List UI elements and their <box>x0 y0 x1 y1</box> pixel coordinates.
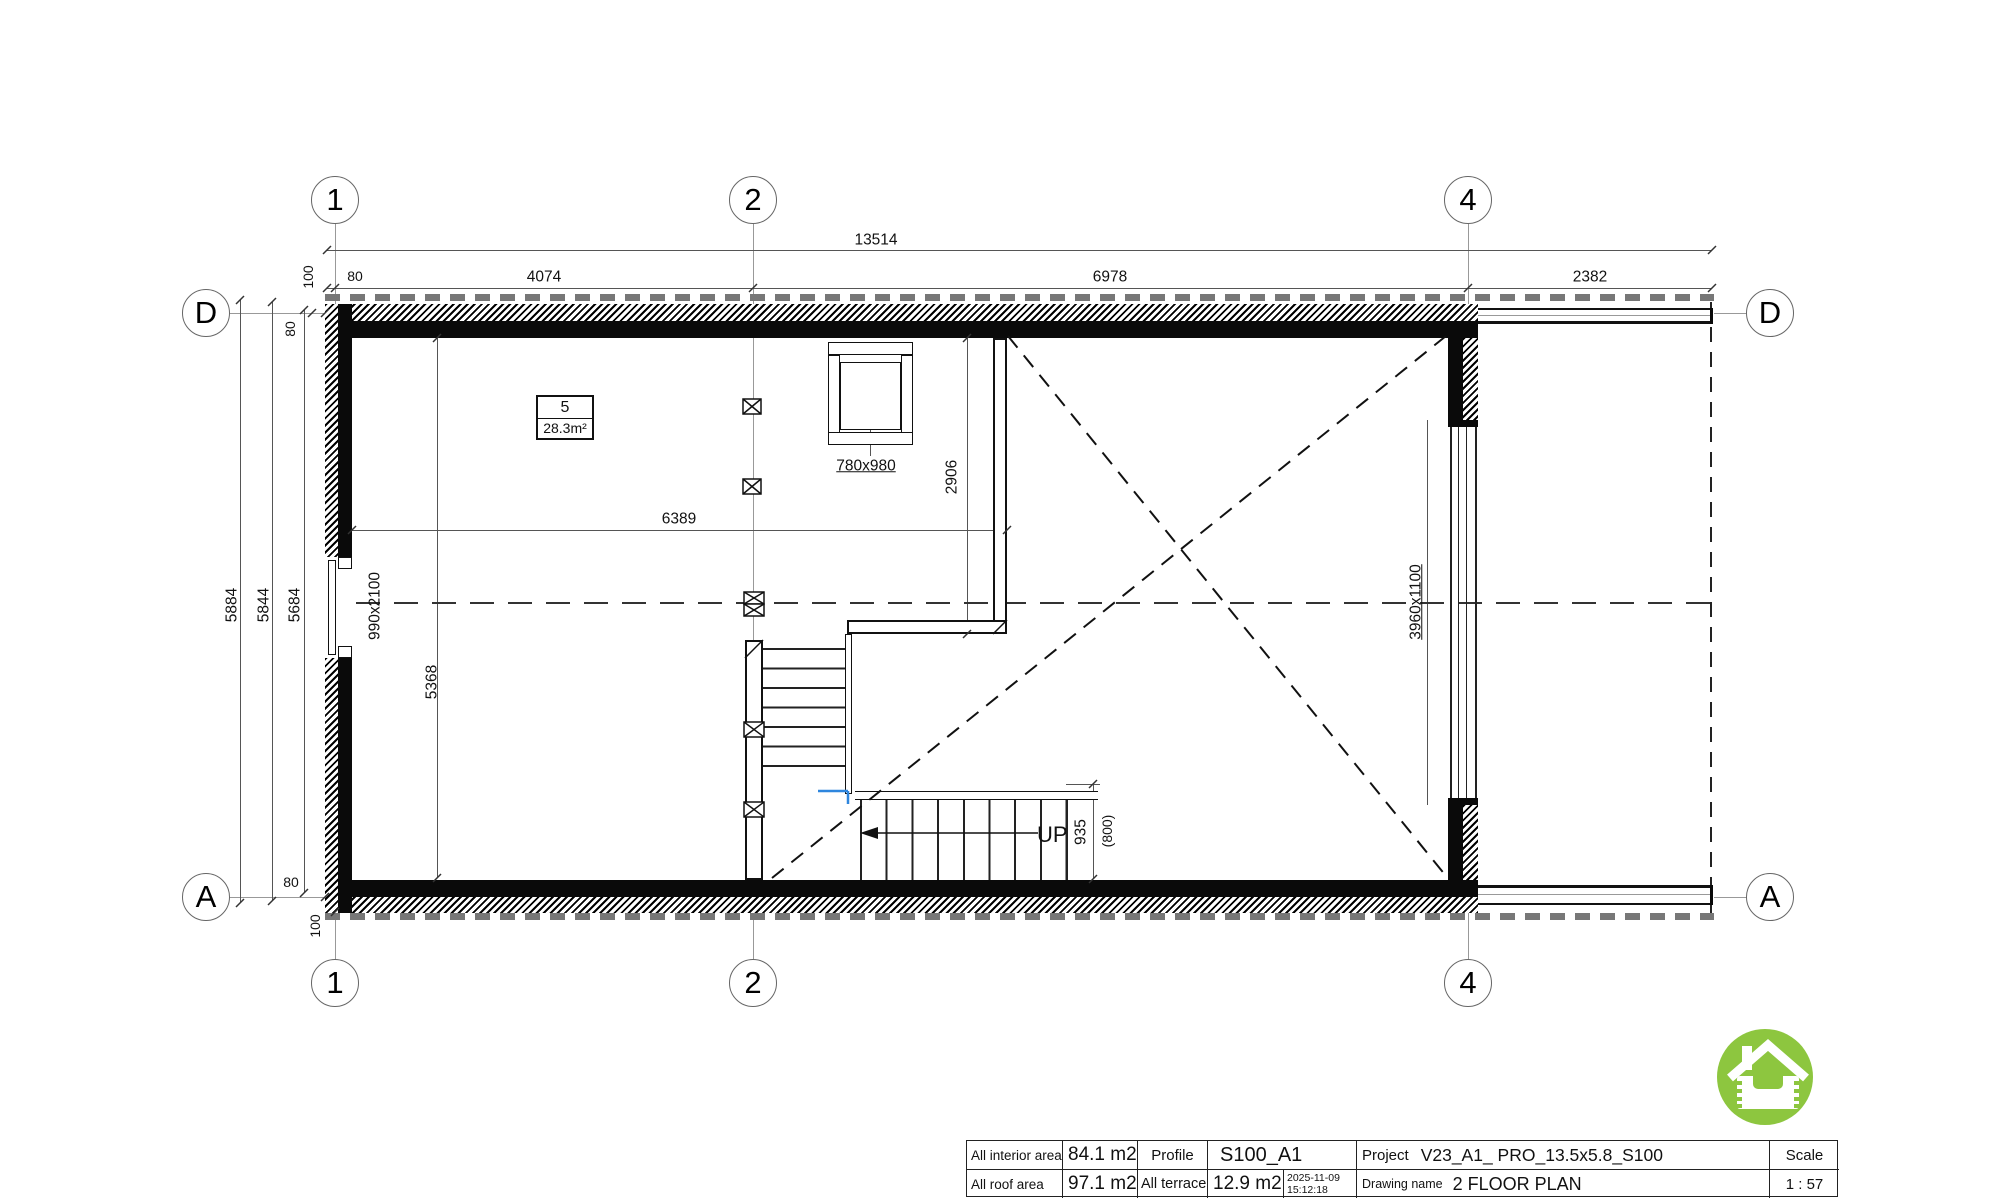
post-x-2 <box>743 479 761 494</box>
drawing-name-label: Drawing name <box>1362 1177 1443 1191</box>
floor-plan-sheet: 13514 80 4074 6978 2382 100 80 5884 5844… <box>0 0 2000 1200</box>
profile-value: S100_A1 <box>1220 1144 1302 1167</box>
grid-bubble-D-left: D <box>182 289 230 337</box>
logo-cabin-notch <box>1753 1076 1783 1089</box>
post-x-1 <box>743 399 761 414</box>
grid-bubble-1-bottom: 1 <box>311 959 359 1007</box>
grid-bubble-2-bottom: 2 <box>729 959 777 1007</box>
grid-bubble-D-right: D <box>1746 289 1794 337</box>
cell-roof-area-value: 97.1 m2 <box>1062 1170 1137 1198</box>
company-logo <box>1717 1029 1813 1125</box>
interior-area-value: 84.1 m2 <box>1068 1144 1137 1166</box>
grid-bubble-A-left: A <box>182 873 230 921</box>
stair-arrow-head <box>860 827 878 839</box>
cell-interior-area-value: 84.1 m2 <box>1062 1141 1137 1170</box>
scale-label: Scale <box>1786 1147 1824 1164</box>
interior-area-label: All interior area <box>971 1148 1062 1163</box>
scale-value: 1 : 57 <box>1786 1176 1824 1193</box>
room-label: 5 28.3m² <box>536 395 594 440</box>
datetime-time: 15:12:18 <box>1287 1184 1356 1196</box>
terrace-value: 12.9 m2 <box>1213 1173 1282 1195</box>
cell-scale-label: Scale <box>1769 1141 1839 1170</box>
datetime-date: 2025-11-09 <box>1287 1172 1356 1184</box>
plan-line-overlay <box>0 0 2000 1200</box>
project-value: V23_A1_ PRO_13.5x5.8_S100 <box>1421 1145 1663 1166</box>
cell-scale-value: 1 : 57 <box>1769 1170 1839 1198</box>
cell-datetime: 2025-11-09 15:12:18 <box>1283 1170 1356 1198</box>
stair-up-label: UP <box>1037 822 1068 848</box>
mitre-landing-corner <box>993 620 1007 634</box>
cell-terrace-label: All terrace <box>1137 1170 1207 1198</box>
post-x-4 <box>744 722 764 737</box>
roof-diagonal-1 <box>1008 336 1446 876</box>
cell-drawing-name: Drawing name 2 FLOOR PLAN <box>1356 1170 1769 1198</box>
mitre-grid2-corner <box>745 640 763 658</box>
drawing-name-value: 2 FLOOR PLAN <box>1453 1174 1582 1195</box>
room-number: 5 <box>538 397 592 419</box>
terrace-label: All terrace <box>1141 1176 1206 1192</box>
title-block: All interior area 84.1 m2 Profile S100_A… <box>966 1140 1838 1197</box>
project-label: Project <box>1362 1147 1409 1164</box>
cell-profile-label: Profile <box>1137 1141 1207 1170</box>
grid-bubble-A-right: A <box>1746 873 1794 921</box>
post-x-5 <box>744 802 764 817</box>
grid-bubble-4-bottom: 4 <box>1444 959 1492 1007</box>
cell-terrace-value: 12.9 m2 <box>1207 1170 1283 1198</box>
stair-cut-marker <box>818 791 848 804</box>
roof-area-value: 97.1 m2 <box>1068 1173 1137 1195</box>
dim-ticks <box>236 246 1716 916</box>
roof-diagonal-2 <box>772 336 1446 878</box>
cell-profile-value: S100_A1 <box>1207 1141 1356 1170</box>
roof-area-label: All roof area <box>971 1177 1044 1192</box>
grid-bubble-1-top: 1 <box>311 176 359 224</box>
cell-roof-area-label: All roof area <box>967 1170 1062 1198</box>
profile-label: Profile <box>1151 1147 1194 1164</box>
room-area: 28.3m² <box>538 419 592 438</box>
post-x-3 <box>744 592 764 616</box>
grid-bubble-2-top: 2 <box>729 176 777 224</box>
cell-project: Project V23_A1_ PRO_13.5x5.8_S100 <box>1356 1141 1769 1170</box>
grid-bubble-4-top: 4 <box>1444 176 1492 224</box>
cell-interior-area-label: All interior area <box>967 1141 1062 1170</box>
